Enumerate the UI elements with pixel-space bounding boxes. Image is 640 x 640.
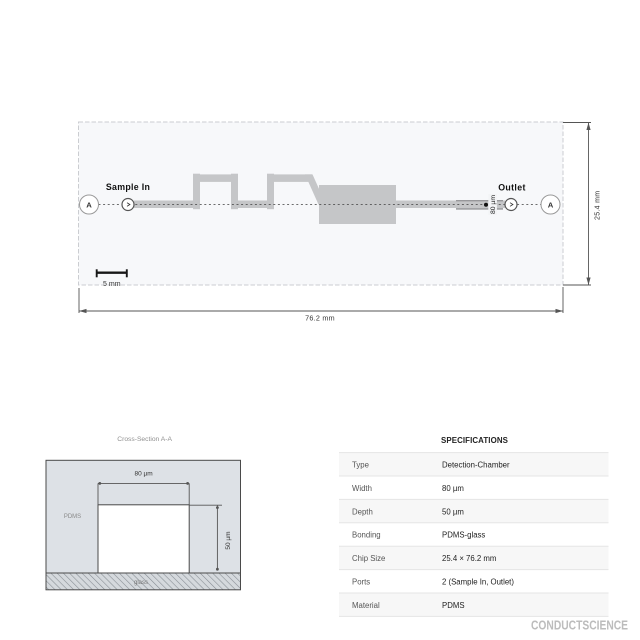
svg-text:SPECIFICATIONS: SPECIFICATIONS (441, 436, 508, 445)
svg-text:glass: glass (134, 580, 148, 586)
svg-text:50 µm: 50 µm (442, 507, 464, 516)
svg-text:25.4 × 76.2 mm: 25.4 × 76.2 mm (442, 554, 496, 563)
svg-text:PDMS: PDMS (442, 601, 465, 610)
svg-text:Depth: Depth (352, 507, 373, 516)
svg-text:80 µm: 80 µm (490, 195, 497, 214)
svg-text:Material: Material (352, 601, 380, 610)
svg-text:50 µm: 50 µm (225, 531, 232, 549)
svg-text:A: A (548, 200, 554, 209)
svg-text:CONDUCTSCIENCE: CONDUCTSCIENCE (531, 619, 628, 633)
svg-text:PDMS-glass: PDMS-glass (442, 531, 485, 540)
svg-text:80 µm: 80 µm (442, 484, 464, 493)
svg-text:25.4 mm: 25.4 mm (594, 191, 601, 220)
svg-text:Width: Width (352, 484, 372, 493)
svg-text:Ports: Ports (352, 578, 370, 587)
svg-text:Detection-Chamber: Detection-Chamber (442, 461, 510, 470)
svg-text:A: A (86, 200, 92, 209)
svg-text:Bonding: Bonding (352, 531, 381, 540)
svg-text:5 mm: 5 mm (103, 281, 121, 288)
svg-text:Outlet: Outlet (498, 183, 526, 193)
svg-text:Cross-Section A-A: Cross-Section A-A (117, 436, 172, 443)
svg-text:76.2 mm: 76.2 mm (305, 314, 335, 323)
svg-text:Type: Type (352, 461, 369, 470)
svg-text:80 µm: 80 µm (134, 471, 152, 478)
svg-text:Sample In: Sample In (106, 182, 150, 192)
svg-text:PDMS: PDMS (64, 514, 81, 520)
svg-text:Chip Size: Chip Size (352, 554, 385, 563)
svg-text:2 (Sample In, Outlet): 2 (Sample In, Outlet) (442, 578, 514, 587)
